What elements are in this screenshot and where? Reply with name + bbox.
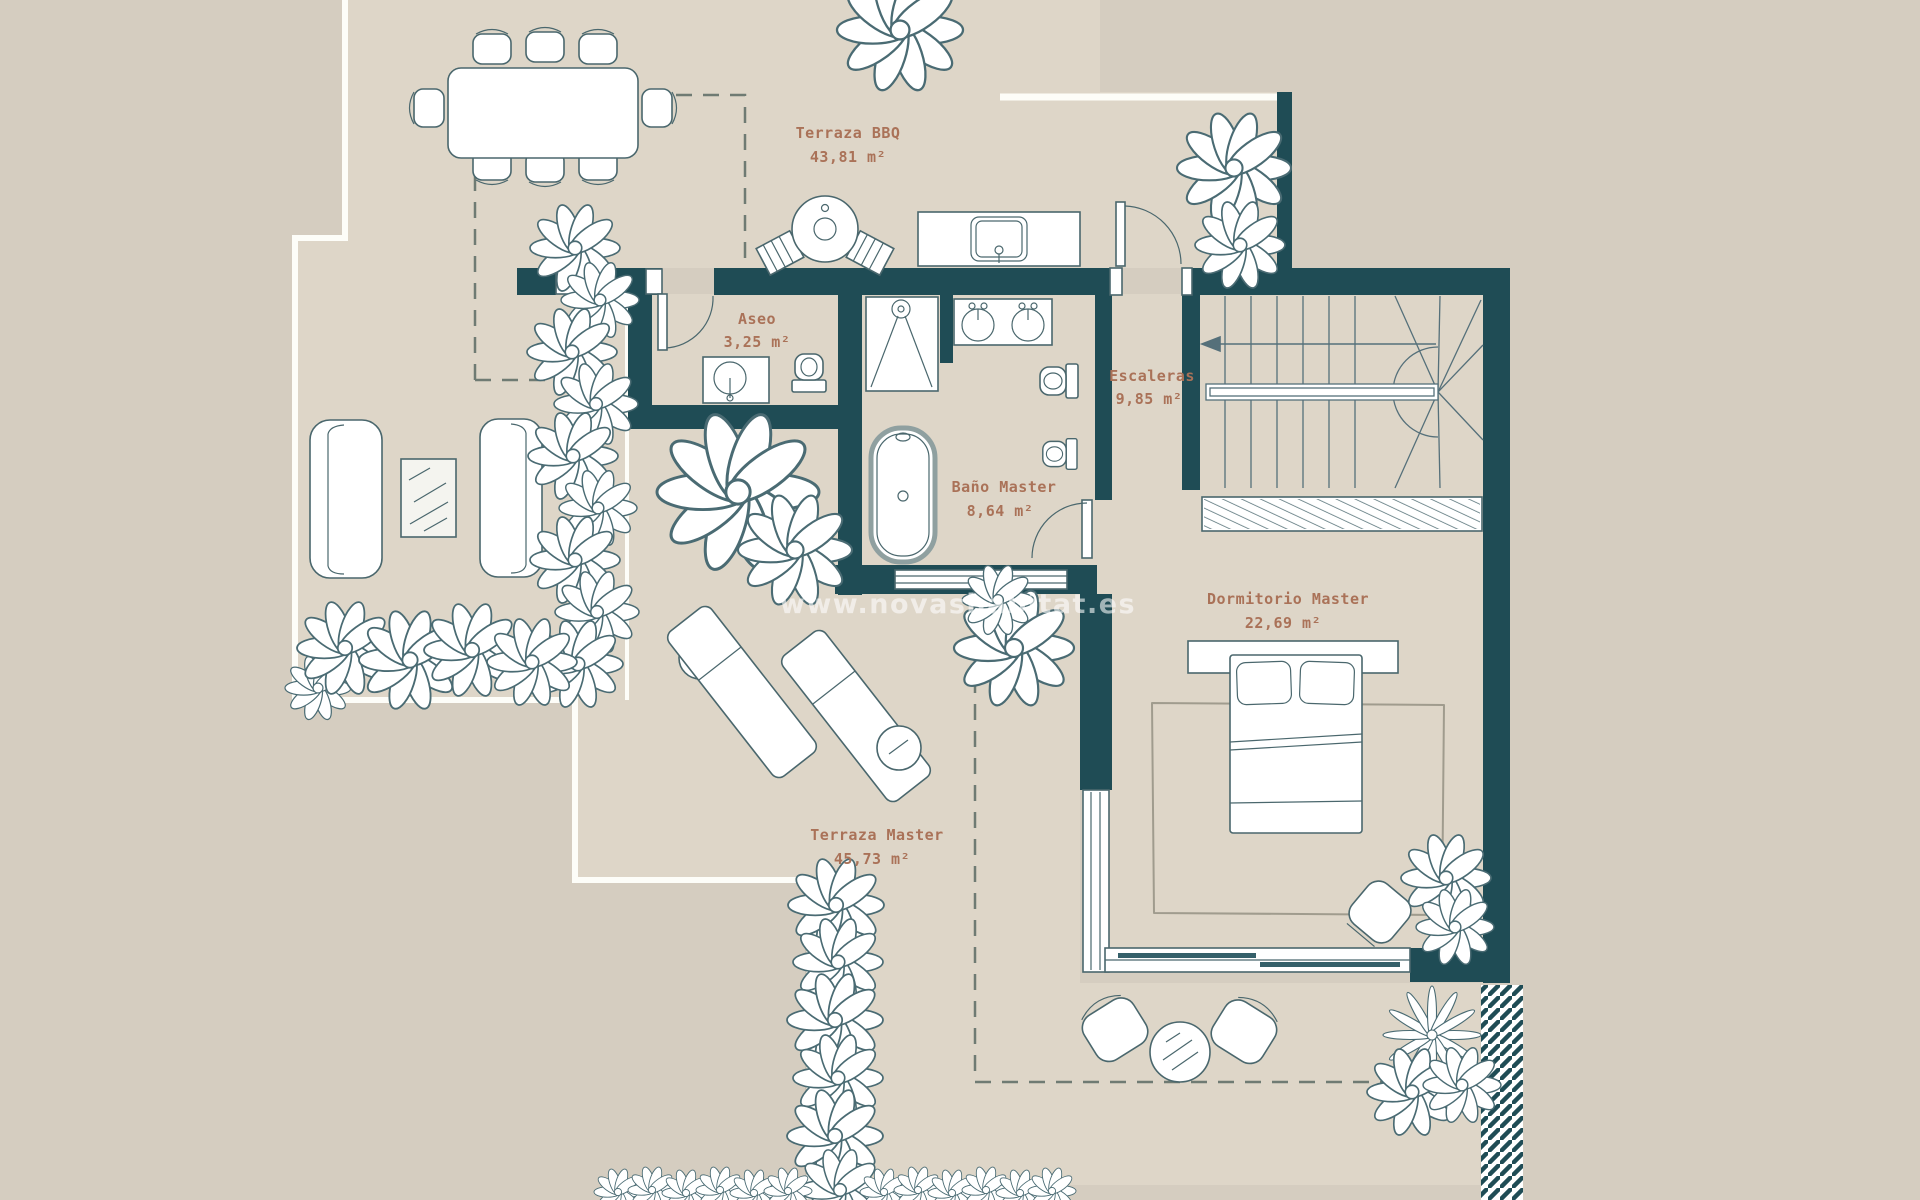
side-table-2: [877, 726, 921, 770]
room-label-bano-master: Baño Master: [952, 478, 1057, 496]
room-area-bano-master: 8,64 m²: [967, 502, 1034, 520]
aseo-toilet: [792, 354, 826, 392]
door-jamb-aseo: [646, 269, 662, 294]
dining-chair: [410, 89, 445, 127]
window-bedroom-left: [1083, 790, 1109, 972]
wardrobe-hatch: [1204, 499, 1480, 529]
shrub: [594, 1168, 642, 1200]
slider-panel-1: [1118, 953, 1256, 958]
sofa-right: [480, 419, 542, 577]
dining-chair: [579, 30, 617, 65]
wall-bath-east: [1095, 295, 1112, 500]
outdoor-kitchen: [918, 212, 1080, 266]
room-area-escaleras: 9,85 m²: [1116, 390, 1183, 408]
dining-chair: [642, 89, 677, 127]
dining-chair: [526, 28, 564, 63]
door-leaf-bbq: [1116, 202, 1125, 266]
sofa-left: [310, 420, 382, 578]
room-label-aseo: Aseo: [738, 310, 776, 328]
door-leaf-aseo: [658, 294, 667, 350]
room-label-terraza-master: Terraza Master: [810, 826, 943, 844]
room-area-terraza-master: 45,73 m²: [834, 850, 910, 868]
room-area-terraza-bbq: 43,81 m²: [810, 148, 886, 166]
door-jamb-bbq-1: [1110, 268, 1122, 295]
room-area-dormitorio-master: 22,69 m²: [1245, 614, 1321, 632]
dining-chair: [473, 30, 511, 65]
bed: [1230, 655, 1362, 833]
room-label-escaleras: Escaleras: [1109, 367, 1195, 385]
room-label-terraza-bbq: Terraza BBQ: [796, 124, 901, 142]
door-jamb-bbq-2: [1182, 268, 1192, 295]
watermark: www.novashabitat.es: [780, 589, 1136, 620]
bath-bidet: [1043, 439, 1077, 470]
slider-panel-2: [1260, 962, 1400, 967]
room-area-aseo: 3,25 m²: [724, 333, 791, 351]
bathtub: [871, 428, 935, 562]
coffee-table: [401, 459, 456, 537]
room-label-dormitorio-master: Dormitorio Master: [1207, 590, 1369, 608]
aseo-sink-counter: [703, 357, 769, 403]
wall-aseo-bottom: [628, 405, 838, 429]
wall-stairs-left: [1182, 295, 1200, 490]
wall-bedroom-left: [1080, 594, 1112, 790]
terrace-round-table: [1150, 1022, 1210, 1082]
floor-plan: Terraza BBQ 43,81 m² Aseo 3,25 m² Escale…: [0, 0, 1920, 1200]
wall-shower-stub: [940, 295, 953, 363]
shrub: [764, 1167, 812, 1200]
door-leaf-bath: [1082, 500, 1092, 558]
bath-toilet: [1040, 364, 1078, 398]
dining-table: [448, 68, 638, 158]
shower: [866, 297, 938, 391]
shrub: [662, 1169, 710, 1200]
floor-plan-canvas: Terraza BBQ 43,81 m² Aseo 3,25 m² Escale…: [0, 0, 1920, 1200]
